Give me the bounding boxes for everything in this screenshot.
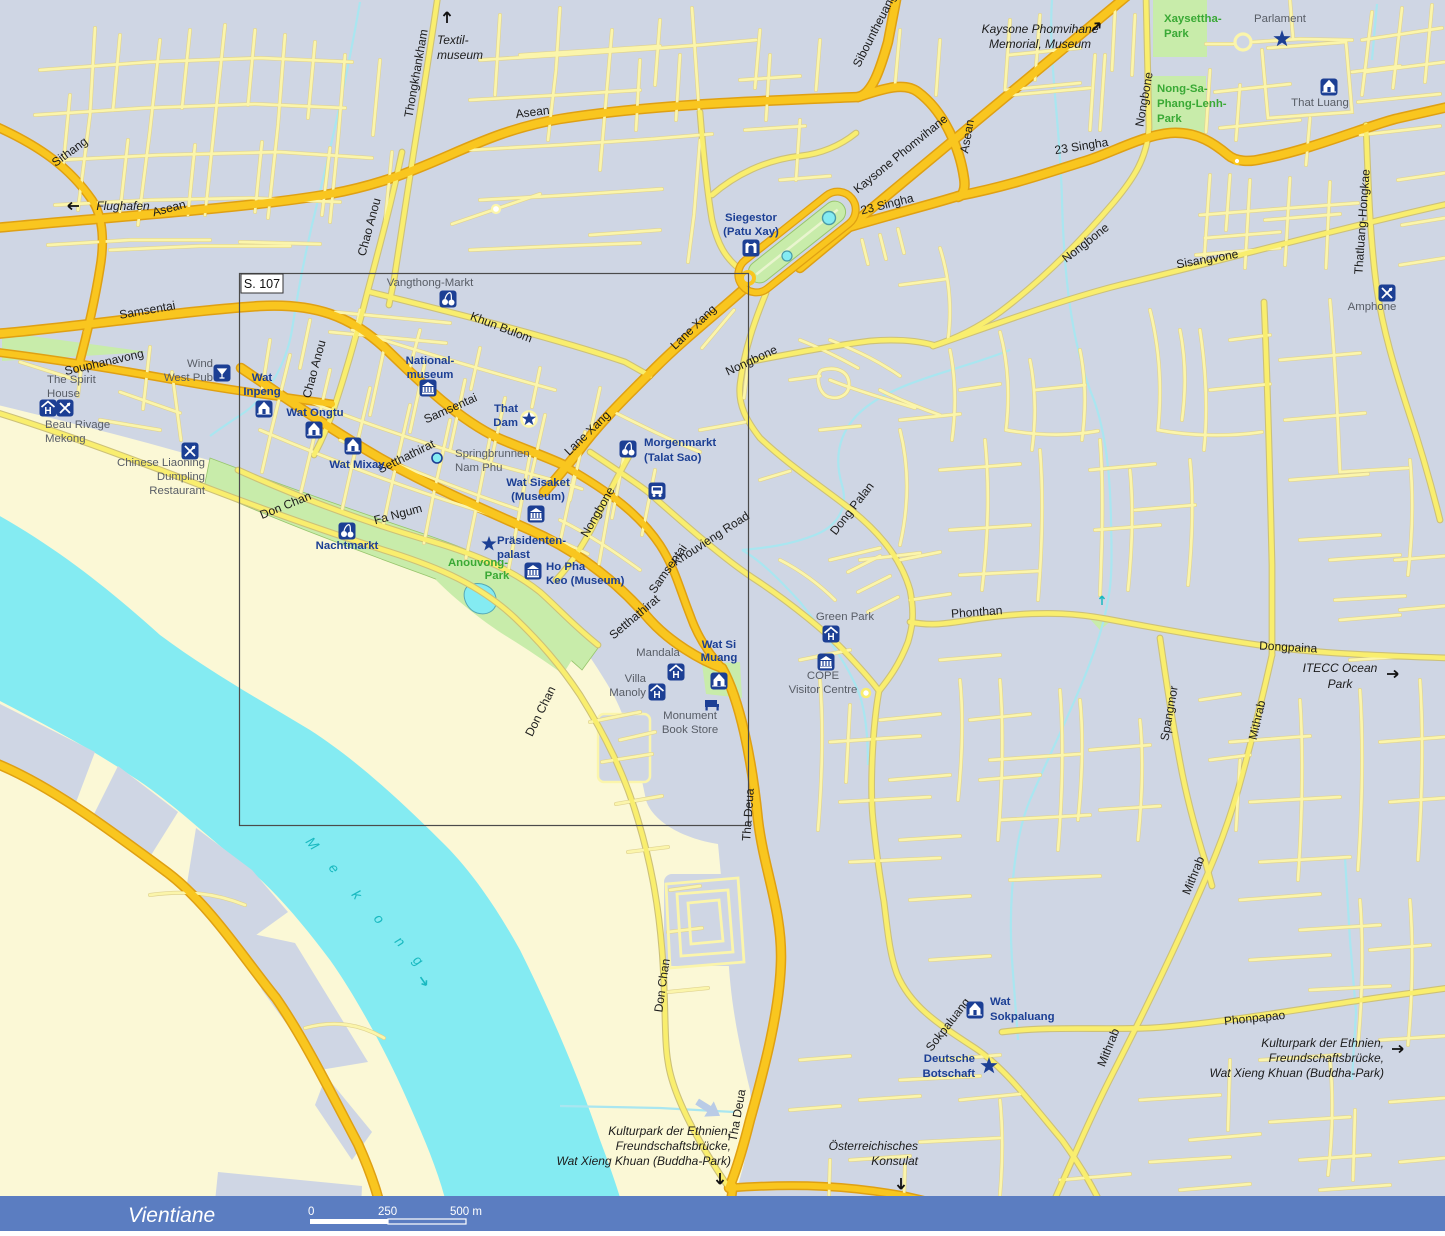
- svg-text:Phang-Lenh-: Phang-Lenh-: [1157, 98, 1227, 110]
- svg-text:That Luang: That Luang: [1291, 97, 1349, 109]
- svg-text:Park: Park: [1328, 677, 1354, 691]
- svg-text:Kulturpark der Ethnien,: Kulturpark der Ethnien,: [1261, 1036, 1384, 1050]
- svg-text:Amphone: Amphone: [1348, 301, 1397, 313]
- svg-text:H: H: [827, 632, 834, 643]
- svg-text:Beau Rivage: Beau Rivage: [45, 419, 110, 431]
- svg-text:Nam Phu: Nam Phu: [455, 462, 502, 474]
- svg-text:Dumpling: Dumpling: [157, 471, 205, 483]
- svg-text:250: 250: [378, 1206, 397, 1218]
- svg-text:Sokpaluang: Sokpaluang: [990, 1011, 1055, 1023]
- svg-text:0: 0: [308, 1206, 314, 1218]
- svg-text:(Museum): (Museum): [511, 491, 565, 503]
- svg-text:Flughafen: Flughafen: [96, 199, 150, 213]
- svg-text:Deutsche: Deutsche: [924, 1053, 975, 1065]
- svg-text:500 m: 500 m: [450, 1206, 482, 1218]
- svg-text:Anouvong-: Anouvong-: [448, 557, 508, 569]
- svg-text:Dam: Dam: [493, 417, 518, 429]
- svg-text:Siegestor: Siegestor: [725, 212, 777, 224]
- svg-text:Präsidenten-: Präsidenten-: [497, 535, 566, 547]
- svg-text:Park: Park: [1164, 28, 1189, 40]
- svg-text:Memorial, Museum: Memorial, Museum: [989, 37, 1091, 51]
- svg-text:museum: museum: [407, 369, 454, 381]
- svg-text:Kulturpark der Ethnien,: Kulturpark der Ethnien,: [608, 1124, 731, 1138]
- svg-text:That: That: [494, 403, 518, 415]
- svg-text:Springbrunnen: Springbrunnen: [455, 448, 530, 460]
- svg-text:Wat Mixay: Wat Mixay: [329, 459, 385, 471]
- svg-text:(Talat Sao): (Talat Sao): [644, 452, 702, 464]
- svg-text:Monument: Monument: [663, 710, 718, 722]
- svg-text:Nong-Sa-: Nong-Sa-: [1157, 83, 1208, 95]
- svg-text:Park: Park: [485, 570, 510, 582]
- svg-text:Vientiane: Vientiane: [128, 1204, 215, 1227]
- svg-text:Morgenmarkt: Morgenmarkt: [644, 437, 716, 449]
- svg-text:Visitor Centre: Visitor Centre: [789, 684, 858, 696]
- svg-text:Parlament: Parlament: [1254, 13, 1307, 25]
- svg-text:H: H: [44, 406, 51, 417]
- svg-text:Xaysettha-: Xaysettha-: [1164, 13, 1222, 25]
- svg-text:H: H: [672, 670, 679, 681]
- svg-text:Freundschaftsbrücke,: Freundschaftsbrücke,: [616, 1139, 731, 1153]
- svg-text:West Pub: West Pub: [164, 372, 213, 384]
- svg-text:Manoly: Manoly: [609, 687, 646, 699]
- svg-text:National-: National-: [406, 355, 455, 367]
- svg-text:Keo (Museum): Keo (Museum): [546, 575, 625, 587]
- svg-text:COPE: COPE: [807, 670, 840, 682]
- svg-text:Nachtmarkt: Nachtmarkt: [316, 540, 379, 552]
- svg-text:Wat: Wat: [990, 996, 1011, 1008]
- svg-text:Restaurant: Restaurant: [149, 485, 206, 497]
- svg-text:Green Park: Green Park: [816, 611, 875, 623]
- svg-text:Wat Sisaket: Wat Sisaket: [506, 477, 570, 489]
- svg-text:The Spirit: The Spirit: [47, 374, 97, 386]
- svg-text:Ho Pha: Ho Pha: [546, 561, 586, 573]
- svg-text:Park: Park: [1157, 113, 1182, 125]
- svg-text:Vangthong-Markt: Vangthong-Markt: [387, 277, 474, 289]
- svg-text:Österreichisches: Österreichisches: [829, 1139, 918, 1153]
- svg-text:Botschaft: Botschaft: [922, 1068, 975, 1080]
- svg-text:Wat Si: Wat Si: [702, 639, 736, 651]
- svg-text:Wat Ongtu: Wat Ongtu: [286, 407, 343, 419]
- svg-text:House: House: [47, 388, 80, 400]
- svg-text:(Patu Xay): (Patu Xay): [723, 226, 779, 238]
- svg-text:Villa: Villa: [625, 673, 647, 685]
- svg-text:Wind: Wind: [187, 358, 213, 370]
- svg-text:Konsulat: Konsulat: [871, 1154, 918, 1168]
- svg-text:Freundschaftsbrücke,: Freundschaftsbrücke,: [1269, 1051, 1384, 1065]
- svg-text:Kaysone Phomvihane: Kaysone Phomvihane: [982, 22, 1099, 36]
- svg-text:H: H: [653, 690, 660, 701]
- svg-text:S. 107: S. 107: [244, 277, 280, 291]
- svg-text:Textil-: Textil-: [437, 33, 469, 47]
- svg-text:ITECC Ocean: ITECC Ocean: [1303, 661, 1378, 675]
- svg-text:Wat: Wat: [252, 372, 273, 384]
- svg-text:Muang: Muang: [701, 652, 738, 664]
- svg-text:Wat Xieng Khuan (Buddha-Park): Wat Xieng Khuan (Buddha-Park): [556, 1154, 731, 1168]
- svg-text:Inpeng: Inpeng: [243, 386, 280, 398]
- svg-text:museum: museum: [437, 48, 483, 62]
- svg-text:Wat Xieng Khuan (Buddha-Park): Wat Xieng Khuan (Buddha-Park): [1209, 1066, 1384, 1080]
- svg-text:Mandala: Mandala: [636, 647, 680, 659]
- svg-text:Mekong: Mekong: [45, 433, 86, 445]
- svg-text:Book Store: Book Store: [662, 724, 718, 736]
